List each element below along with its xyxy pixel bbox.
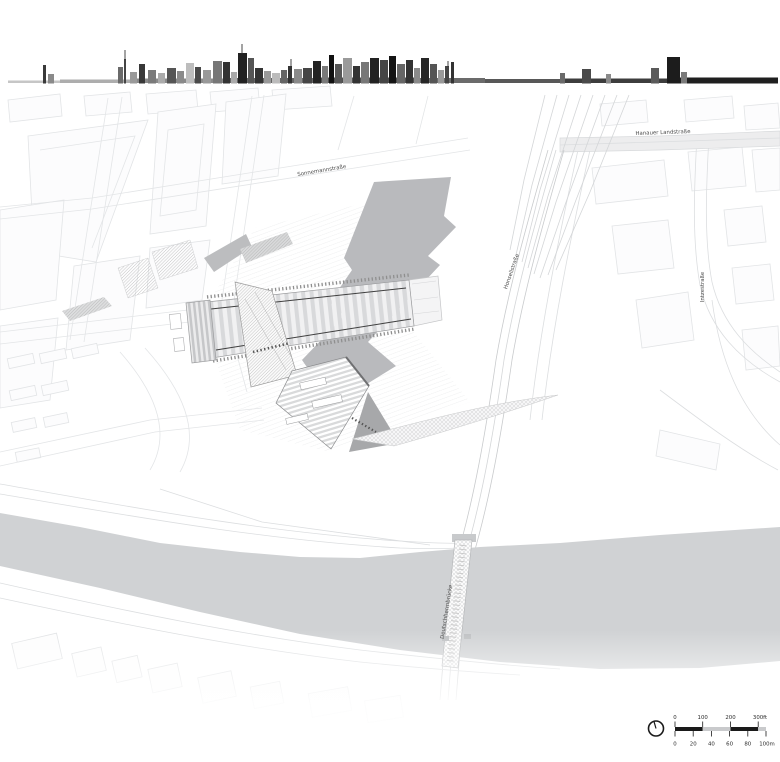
scale-meter-label: 0 (673, 742, 677, 748)
city-block (742, 326, 780, 370)
skyline-building (124, 59, 126, 84)
skyline-building (203, 70, 211, 84)
skyline-building (322, 66, 328, 84)
city-block (636, 292, 694, 348)
street-label-intzestrasse: Intzestraße (700, 271, 706, 302)
city-block (752, 148, 780, 192)
skyline-building (195, 67, 201, 84)
site-plan-drawing: Sonnemannstraße Hanauer Landstraße Honse… (0, 0, 780, 762)
scale-meter-label: 100m (759, 742, 775, 748)
skyline-baseline (485, 79, 565, 83)
landscape-curve (145, 348, 189, 472)
skyline-building (167, 68, 176, 84)
skyline-building (397, 64, 405, 84)
skyline-building (335, 64, 342, 84)
skyline-building (606, 74, 611, 84)
street-line (542, 150, 590, 420)
scale-segment (703, 727, 731, 731)
hall-east-annex (409, 276, 442, 326)
scale-feet-label: 100 (698, 715, 709, 721)
skyline-building (294, 69, 302, 84)
site-plan-canvas: Sonnemannstraße Hanauer Landstraße Honse… (0, 0, 780, 762)
street-label-honsellstrasse: Honsellstraße (503, 253, 521, 291)
skyline-building (248, 58, 254, 84)
skyline-building (281, 70, 287, 84)
city-block (0, 200, 64, 310)
city-block (222, 94, 286, 184)
scale-feet-label: 0 (673, 715, 677, 721)
ecb-building-complex (62, 177, 558, 452)
city-block (656, 430, 720, 470)
bottom-fade (0, 630, 780, 762)
street-line (416, 96, 428, 144)
skyline-building (158, 73, 165, 84)
skyline-building (380, 60, 388, 84)
city-block (592, 160, 668, 204)
skyline-building (238, 53, 247, 84)
frankfurt-skyline-silhouette (8, 44, 778, 84)
skyline-building (139, 64, 145, 84)
skyline-building (370, 58, 379, 84)
rail-fan-line (534, 95, 593, 274)
skyline-building (414, 68, 420, 84)
city-block (84, 92, 132, 116)
city-block (8, 94, 62, 122)
skyline-building (43, 65, 46, 84)
skyline-building (264, 71, 271, 84)
scale-meter-label: 40 (708, 742, 715, 748)
scale-segment (758, 727, 766, 731)
quay-ramp (160, 489, 430, 545)
skyline-building (231, 72, 237, 84)
skyline-building (445, 66, 449, 84)
rail-fan-line (528, 95, 581, 268)
skyline-building (329, 55, 334, 84)
skyline-building (667, 57, 680, 84)
scale-meter-label: 20 (690, 742, 697, 748)
skyline-building (353, 66, 360, 84)
street-line (530, 150, 578, 420)
skyline-building (560, 73, 565, 84)
scale-segment (731, 727, 759, 731)
skyline-building (406, 60, 413, 84)
skyline-building (438, 70, 444, 84)
skyline-building (148, 70, 156, 84)
city-block (688, 147, 746, 191)
skyline-baseline (60, 80, 135, 84)
city-block (600, 100, 648, 126)
scale-meter-label: 60 (726, 742, 733, 748)
landscape-curve (120, 352, 160, 470)
rail-fan-line (516, 95, 557, 255)
skyline-building (186, 63, 194, 84)
skyline-building (651, 68, 659, 84)
skyline-building (389, 56, 396, 84)
skyline-building (177, 71, 184, 84)
scale-segment (675, 727, 703, 731)
skyline-building (288, 66, 292, 84)
skyline-building (343, 58, 352, 84)
skyline-building (313, 61, 321, 84)
skyline-building (272, 73, 280, 84)
scale-feet-label: 200 (725, 715, 736, 721)
west-outbuilding (169, 313, 182, 329)
scale-feet-label: 300ft (753, 715, 767, 721)
west-outbuilding (173, 338, 184, 352)
skyline-building (130, 72, 137, 84)
skyline-building (48, 74, 54, 84)
city-block (684, 96, 734, 122)
street-line (0, 420, 264, 466)
street-label-sonnemannstrasse: Sonnemannstraße (297, 164, 347, 178)
city-block (724, 206, 766, 246)
skyline-building (223, 62, 230, 84)
city-block (732, 264, 774, 304)
street-line (0, 408, 262, 452)
skyline-building (430, 64, 437, 84)
skyline-building (451, 62, 454, 84)
street-line (712, 300, 780, 445)
skyline-building (213, 61, 222, 84)
skyline-building (582, 69, 591, 84)
skyline-building (681, 72, 687, 84)
skyline-building (118, 67, 123, 84)
scale-meter-label: 80 (744, 742, 751, 748)
street-line (338, 96, 354, 150)
city-block (612, 220, 674, 274)
skyline-building (421, 58, 429, 84)
skyline-building (361, 62, 369, 84)
skyline-building (303, 68, 312, 84)
city-block (744, 103, 780, 130)
skyline-building (255, 68, 263, 84)
